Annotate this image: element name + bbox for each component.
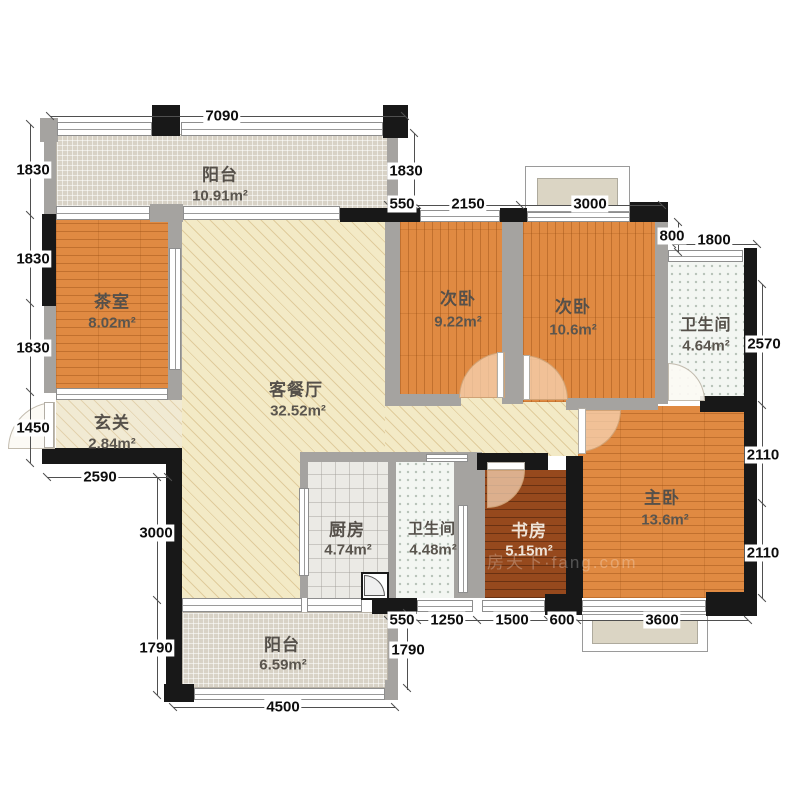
room-name-balcony-top: 阳台 <box>202 161 238 186</box>
room-name-tea-room: 茶室 <box>94 288 130 313</box>
room-area-bedroom-left: 9.22m² <box>434 314 482 331</box>
room-name-study: 书房 <box>511 517 547 542</box>
dim-bottom-1250: 1250 <box>428 612 465 629</box>
dim-top-2150: 2150 <box>449 196 486 213</box>
dim-left-1790: 1790 <box>137 640 174 657</box>
room-name-master-bedroom: 主卧 <box>644 484 680 509</box>
wall-segment <box>150 204 183 222</box>
room-name-bathroom-bottom: 卫生间 <box>408 518 456 539</box>
dim-bottom-600: 600 <box>547 612 576 629</box>
window <box>56 388 168 400</box>
bedroom-left-door-leaf <box>497 352 504 398</box>
room-area-bathroom-bottom: 4.48m² <box>409 542 457 559</box>
dim-right-2110-a: 2110 <box>745 447 782 464</box>
dim-top-3000: 3000 <box>571 196 608 213</box>
room-area-balcony-top: 10.91m² <box>192 188 248 205</box>
window <box>417 600 473 612</box>
window <box>458 505 468 593</box>
room-name-entry: 玄关 <box>94 409 130 434</box>
wall-segment <box>502 214 523 404</box>
room-name-balcony-bottom: 阳台 <box>264 631 300 656</box>
dim-bottom-1500: 1500 <box>493 612 530 629</box>
window <box>482 600 545 612</box>
dim-top-7090: 7090 <box>203 108 240 125</box>
window <box>56 206 150 220</box>
window <box>527 212 630 222</box>
room-area-entry: 2.84m² <box>88 436 136 453</box>
room-area-master-bedroom: 13.6m² <box>641 512 689 529</box>
room-name-bedroom-left: 次卧 <box>440 285 476 310</box>
room-name-bathroom-top: 卫生间 <box>680 311 731 335</box>
window <box>57 122 152 136</box>
room-name-kitchen: 厨房 <box>329 516 365 541</box>
wall-segment <box>164 684 194 702</box>
room-area-bathroom-top: 4.64m² <box>682 338 730 355</box>
room-name-bedroom-right: 次卧 <box>555 293 591 318</box>
dim-bottom-4500: 4500 <box>264 699 301 716</box>
wall-segment <box>385 222 400 398</box>
dim-right-2110-b: 2110 <box>745 545 782 562</box>
wall-segment <box>566 456 583 598</box>
window <box>182 598 302 612</box>
dimension-line <box>157 477 158 695</box>
room-area-living-dining: 32.52m² <box>270 403 326 420</box>
study-door-leaf <box>487 462 525 470</box>
wall-segment <box>385 680 398 700</box>
wall-segment <box>383 105 408 138</box>
dim-balcony-1830: 1830 <box>387 163 424 180</box>
window <box>582 600 706 612</box>
wall-segment <box>385 394 461 406</box>
dim-top-550: 550 <box>387 196 416 213</box>
room-name-living-dining: 客餐厅 <box>269 376 323 401</box>
window <box>299 488 309 576</box>
floor-plan: 阳台 10.91m² 茶室 8.02m² 客餐厅 32.52m² 次卧 9.22… <box>0 0 800 800</box>
wall-segment <box>300 452 390 462</box>
dim-left-1450: 1450 <box>14 420 51 437</box>
wall-segment <box>706 592 757 616</box>
master-door-leaf <box>578 408 586 454</box>
dim-bottom-3600: 3600 <box>643 612 680 629</box>
wall-segment <box>500 208 527 222</box>
dim-bottom-1790: 1790 <box>389 642 426 659</box>
wall-segment <box>40 118 58 142</box>
wall-segment <box>700 396 745 412</box>
dim-left-1830-b: 1830 <box>14 251 51 268</box>
room-area-kitchen: 4.74m² <box>324 542 372 559</box>
dim-left-3000: 3000 <box>137 525 174 542</box>
wall-segment <box>152 105 180 136</box>
dim-left-1830-a: 1830 <box>14 162 51 179</box>
room-area-bedroom-right: 10.6m² <box>549 322 597 339</box>
room-area-balcony-bottom: 6.59m² <box>259 657 307 674</box>
watermark: 房天下·fang.com <box>487 548 638 573</box>
dim-left-1830-c: 1830 <box>14 340 51 357</box>
bedroom-right-door-leaf <box>523 355 530 400</box>
window <box>426 454 468 462</box>
dim-step-800: 800 <box>657 228 686 245</box>
dim-left-2590: 2590 <box>81 469 118 486</box>
dim-bottom-550: 550 <box>387 612 416 629</box>
window <box>169 248 181 370</box>
wall-segment <box>388 460 396 598</box>
window <box>183 206 340 220</box>
dim-step-1800: 1800 <box>695 232 732 249</box>
window <box>307 598 362 612</box>
dim-right-2570: 2570 <box>745 336 782 353</box>
room-area-tea-room: 8.02m² <box>88 315 136 332</box>
dimension-line <box>388 205 662 206</box>
